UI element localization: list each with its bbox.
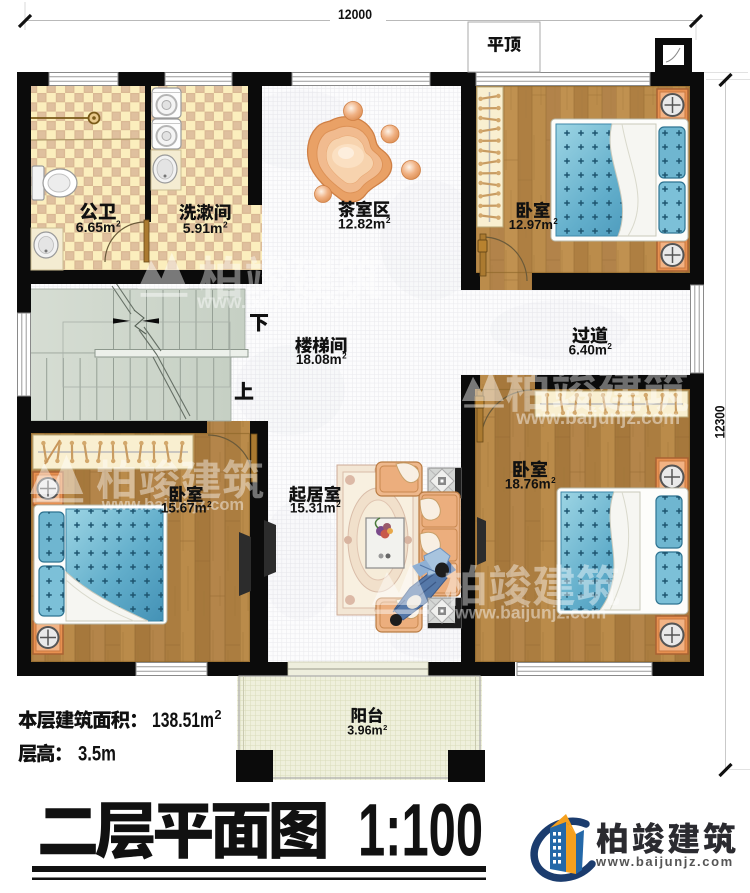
svg-text:2: 2 (386, 215, 391, 225)
svg-text:2: 2 (215, 708, 222, 722)
svg-text:138.51m: 138.51m (152, 709, 214, 732)
svg-text:www.baijunjz.com: www.baijunjz.com (196, 292, 361, 313)
svg-text:15.67m: 15.67m (161, 500, 207, 515)
svg-text:www.baijunjz.com: www.baijunjz.com (515, 408, 680, 429)
svg-text:2: 2 (551, 476, 556, 485)
svg-text:2: 2 (383, 723, 387, 732)
svg-text:12300: 12300 (712, 406, 727, 439)
svg-text:www.baijunjz.com: www.baijunjz.com (595, 854, 734, 869)
svg-text:6.65m: 6.65m (76, 219, 116, 235)
svg-text:2: 2 (553, 217, 558, 226)
svg-text:12000: 12000 (338, 7, 372, 22)
svg-text:12.82m: 12.82m (338, 216, 385, 232)
svg-text:2: 2 (607, 342, 612, 351)
svg-text:5.91m: 5.91m (183, 220, 223, 236)
svg-text:2: 2 (207, 500, 212, 509)
svg-text:15.31m: 15.31m (290, 500, 336, 515)
svg-text:18.08m: 18.08m (296, 352, 342, 367)
svg-text:1:100: 1:100 (358, 789, 483, 872)
svg-text:2: 2 (342, 352, 347, 361)
svg-text:www.baijunjz.com: www.baijunjz.com (454, 602, 606, 622)
svg-text:2: 2 (116, 219, 121, 229)
svg-text:3.96m: 3.96m (347, 724, 382, 738)
svg-text:6.40m: 6.40m (569, 342, 607, 357)
svg-text:3.5m: 3.5m (78, 743, 116, 766)
svg-text:2: 2 (336, 500, 341, 509)
svg-text:18.76m: 18.76m (505, 476, 551, 491)
svg-text:12.97m: 12.97m (509, 217, 553, 232)
svg-text:2: 2 (223, 220, 228, 230)
